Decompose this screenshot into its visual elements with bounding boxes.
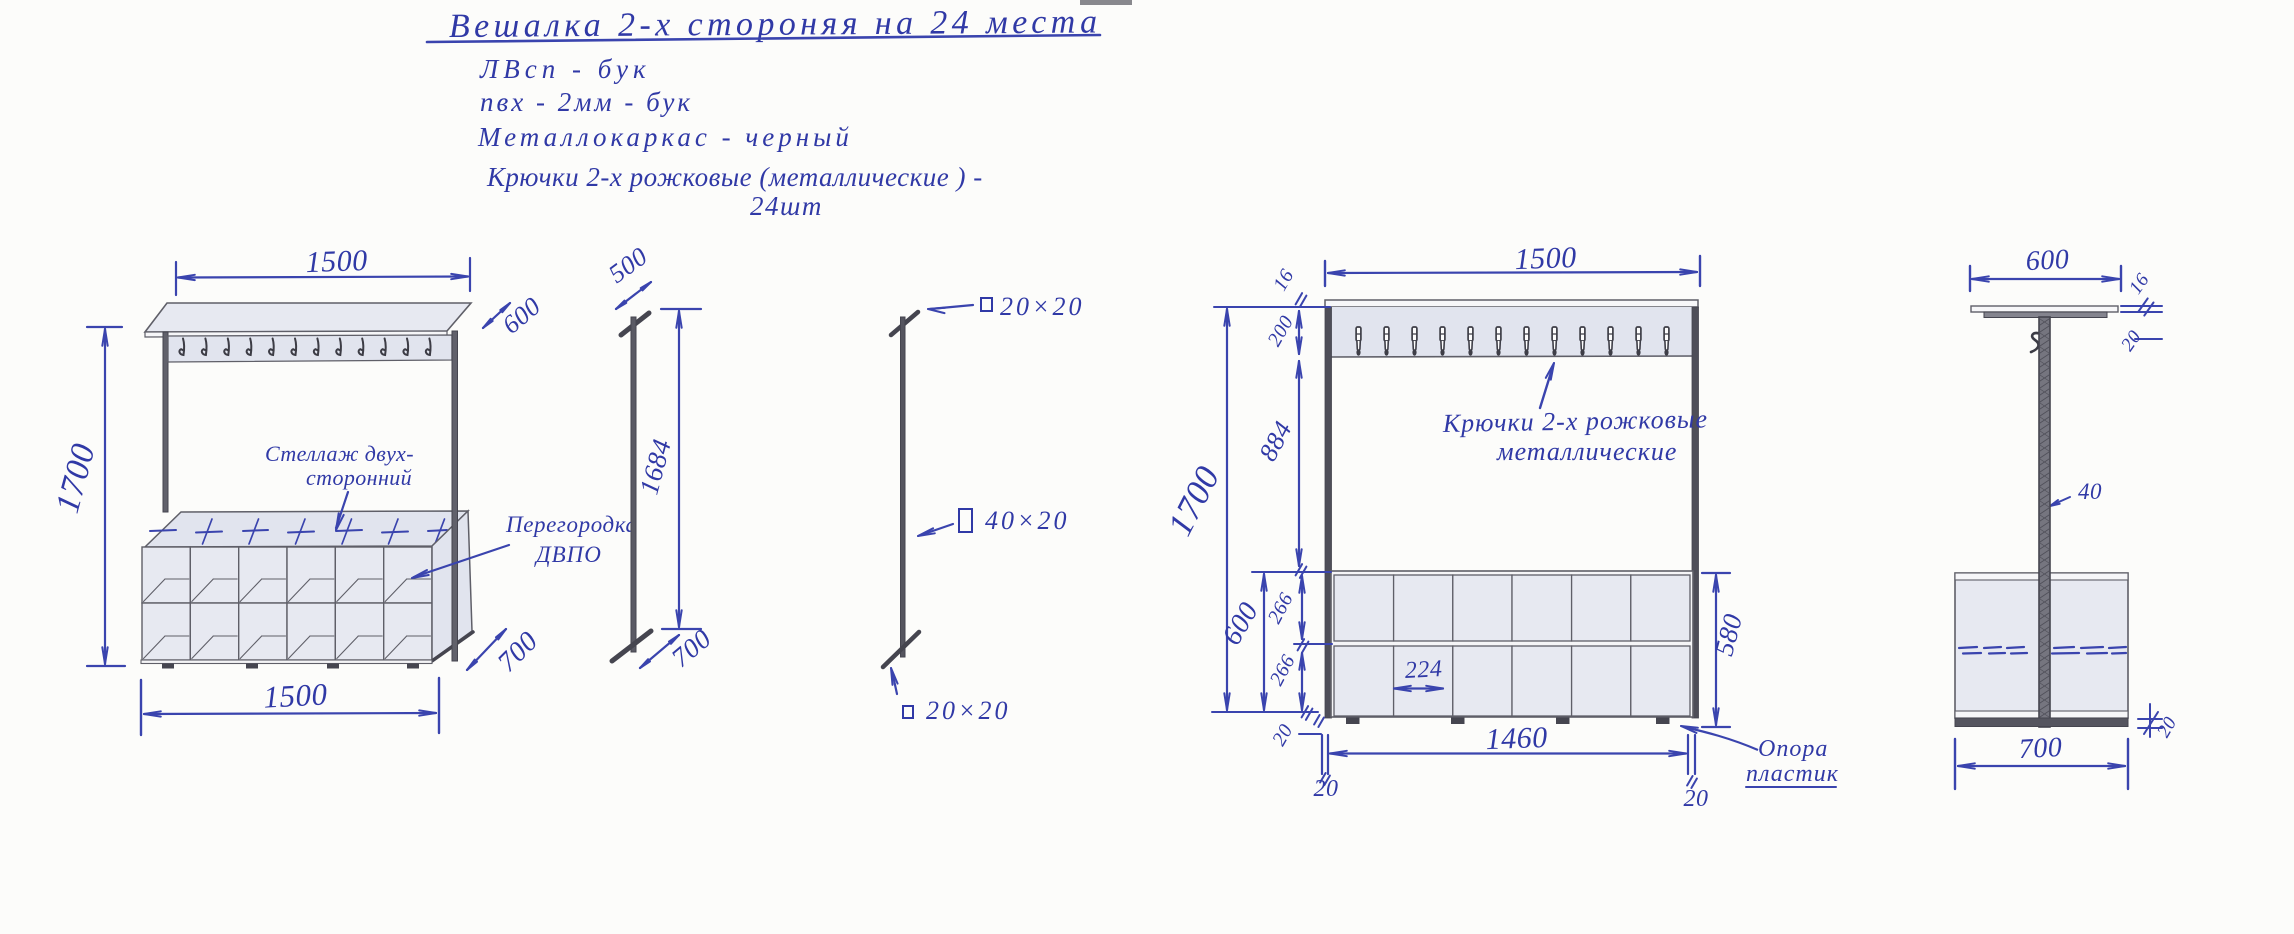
svg-text:Крючки 2-х рожковые: Крючки 2-х рожковые [1442,404,1709,438]
svg-text:Опора: Опора [1758,736,1828,762]
svg-text:сторонний: сторонний [306,465,412,490]
svg-text:пвх - 2мм - бук: пвх - 2мм - бук [480,87,693,117]
svg-text:700: 700 [2018,732,2063,765]
svg-text:1500: 1500 [1514,241,1577,276]
svg-text:224: 224 [1404,656,1443,684]
svg-text:40: 40 [2078,479,2102,504]
svg-text:1500: 1500 [263,676,329,714]
svg-text:20×20: 20×20 [1000,292,1085,321]
svg-text:металлические: металлические [1496,437,1677,466]
svg-text:пластик: пластик [1746,761,1839,787]
svg-text:1500: 1500 [305,244,368,279]
svg-text:Стеллаж двух-: Стеллаж двух- [265,441,414,466]
svg-text:20×20: 20×20 [926,696,1011,725]
svg-text:20: 20 [1684,786,1709,812]
svg-text:ЛВсп - бук: ЛВсп - бук [479,54,651,84]
svg-text:600: 600 [2025,244,2070,277]
svg-text:20: 20 [1314,776,1339,802]
svg-text:Крючки 2-х рожковые (металл: Крючки 2-х рожковые (металлические ) - [486,162,983,192]
svg-text:Перегородка: Перегородка [505,512,638,537]
svg-text:1460: 1460 [1485,721,1548,756]
svg-text:24шт: 24шт [750,191,823,221]
svg-text:40×20: 40×20 [985,506,1070,535]
svg-text:Металлокаркас - черный: Металлокаркас - черный [477,122,853,152]
svg-text:ДВПО: ДВПО [534,542,602,567]
